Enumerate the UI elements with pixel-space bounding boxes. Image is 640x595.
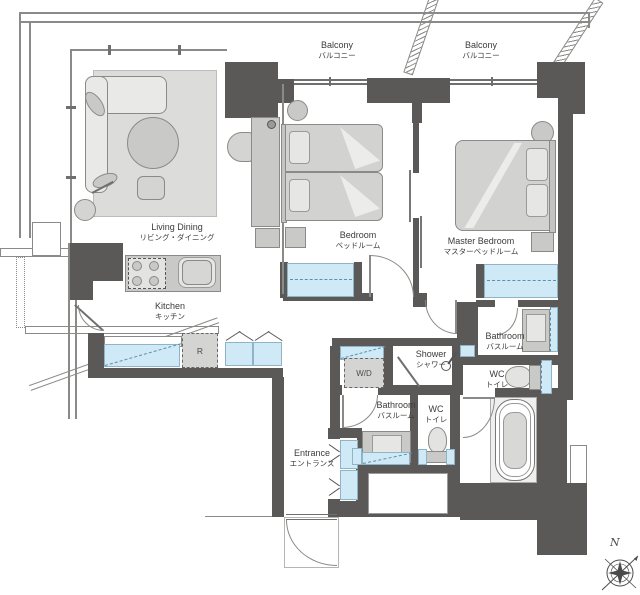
room-label-balcony-left: Balcony バルコニー [318, 40, 355, 61]
room-label-jp: バスルーム [485, 342, 524, 351]
stove-burner [149, 261, 159, 271]
wall [413, 123, 419, 173]
sliding-door [409, 170, 411, 222]
room-label-jp: シャワー [416, 360, 447, 369]
wall [384, 346, 393, 390]
wall [340, 501, 360, 517]
room-label-en: Shower [416, 349, 447, 360]
wall [104, 368, 283, 378]
window-wall [70, 49, 72, 248]
room-label-en: WC [425, 404, 448, 415]
bath-storage [460, 345, 475, 357]
cabinet-door-mark [268, 331, 283, 341]
entrance-landing [284, 517, 339, 568]
room-label-en: Entrance [290, 448, 335, 459]
floor-plan: R W/D [0, 0, 640, 595]
wc-storage [541, 360, 552, 394]
wall [537, 395, 567, 485]
room-label-en: Living Dining [140, 222, 215, 233]
stove-burner [132, 261, 142, 271]
bedroom-closet [287, 263, 354, 297]
window-mullion [329, 77, 331, 86]
window-wall [70, 49, 227, 51]
bedroom-window [293, 79, 369, 85]
room-label-jp: ベッドルーム [336, 241, 381, 250]
closet-dash [290, 279, 352, 280]
room-label-en: Balcony [318, 40, 355, 51]
entrance-alcove [368, 473, 448, 514]
window-mullion [108, 45, 111, 55]
wall [476, 300, 495, 307]
pillow [289, 131, 310, 164]
pillow [526, 184, 548, 217]
exterior-structure [32, 222, 61, 256]
vanity-sink [526, 314, 546, 342]
master-closet [484, 264, 558, 298]
shoe-cabinet [340, 470, 358, 500]
closet-dash [363, 453, 412, 464]
wall [558, 98, 585, 114]
coffee-table [127, 117, 179, 169]
toilet [505, 366, 531, 388]
nightstand [531, 232, 554, 252]
room-label-master-bedroom: Master Bedroom マスターベッドルーム [444, 236, 519, 257]
wc-storage [446, 449, 455, 465]
wall [88, 333, 104, 378]
balcony-rail [19, 21, 590, 23]
room-label-jp: トイレ [425, 415, 448, 424]
bath-storage [362, 452, 410, 465]
closet-dash [105, 343, 181, 366]
stove-burner [132, 276, 142, 286]
room-label-jp: リビング・ダイニング [140, 233, 215, 242]
floor-lamp [74, 199, 96, 221]
door-arc [370, 255, 414, 297]
bathtub-basin [503, 412, 527, 469]
balcony-rail [29, 21, 31, 238]
wall [330, 346, 340, 390]
bath-storage [352, 448, 362, 465]
room-label-wc-main: WC トイレ [425, 404, 448, 425]
chair [137, 176, 165, 200]
toilet [428, 427, 447, 453]
wall [518, 300, 558, 307]
balcony-divider [553, 0, 604, 68]
room-label-jp: エントランス [290, 459, 335, 468]
room-label-en: Kitchen [155, 301, 185, 312]
wall [330, 390, 340, 428]
wall [558, 114, 573, 400]
wc-storage [418, 449, 427, 465]
pillow [289, 179, 310, 212]
exterior-louver [16, 257, 25, 328]
hall-closet [104, 344, 180, 367]
refrigerator-label: R [197, 346, 203, 356]
closet-dash [487, 280, 556, 281]
balcony-rail [19, 12, 590, 14]
door-arc [342, 395, 378, 428]
cabinet-door-mark [239, 331, 254, 341]
room-label-wc-ensuite: WC トイレ [486, 369, 509, 390]
wall [225, 62, 278, 118]
toilet-tank [529, 365, 541, 390]
room-label-kitchen: Kitchen キッチン [155, 301, 185, 322]
room-label-en: WC [486, 369, 509, 380]
room-label-bathroom-main: Bathroom バスルーム [376, 400, 415, 421]
dining-chair [255, 228, 280, 248]
washer-dryer-label: W/D [356, 369, 372, 378]
cabinet-door-mark [329, 488, 340, 496]
window-mullion [66, 106, 76, 109]
room-label-bedroom: Bedroom ベッドルーム [336, 230, 381, 251]
wall [476, 264, 484, 298]
cabinet-door-mark [329, 478, 340, 486]
room-label-jp: バルコニー [318, 51, 355, 60]
hall-cabinet [253, 342, 282, 366]
window-mullion [66, 176, 76, 179]
wall [460, 483, 587, 520]
sliding-door [420, 216, 422, 268]
compass-north-label: N [610, 536, 620, 549]
wall [367, 78, 450, 103]
door-arc [425, 300, 457, 334]
bedside-table [287, 100, 308, 121]
window-mullion [178, 45, 181, 55]
wall [378, 385, 454, 395]
bed-headboard [549, 140, 556, 233]
room-label-jp: キッチン [155, 312, 185, 321]
room-label-jp: バルコニー [462, 51, 499, 60]
cabinet-door-mark [255, 331, 270, 341]
wall [70, 281, 93, 300]
wall [413, 218, 419, 300]
room-label-jp: マスターベッドルーム [444, 247, 519, 256]
washer-dryer: W/D [344, 358, 384, 388]
compass-rose-icon: N [598, 536, 640, 592]
room-label-balcony-right: Balcony バルコニー [462, 40, 499, 61]
wall [328, 428, 340, 439]
kitchen-sink-basin [182, 260, 212, 285]
wall [537, 62, 585, 98]
stove-burner [149, 276, 159, 286]
wall [537, 520, 587, 555]
room-label-living-dining: Living Dining リビング・ダイニング [140, 222, 215, 243]
dining-chair [227, 132, 253, 162]
room-label-en: Balcony [462, 40, 499, 51]
wall [332, 338, 458, 346]
room-label-jp: トイレ [486, 380, 509, 389]
master-window [450, 79, 538, 85]
room-label-en: Bathroom [376, 400, 415, 411]
room-label-shower: Shower シャワー [416, 349, 447, 370]
balcony-rail [19, 12, 21, 238]
door-knob [267, 120, 276, 129]
room-label-en: Master Bedroom [444, 236, 519, 247]
compass-rose-svg [598, 550, 640, 594]
room-label-en: Bedroom [336, 230, 381, 241]
room-label-bathroom-ensuite: Bathroom バスルーム [485, 331, 524, 352]
pillow [526, 148, 548, 181]
window-mullion [491, 77, 493, 86]
room-label-entrance: Entrance エントランス [290, 448, 335, 469]
bath-storage [550, 307, 558, 352]
refrigerator-space: R [182, 333, 218, 368]
dining-table [251, 117, 280, 227]
wall [70, 243, 123, 281]
wall [272, 377, 284, 517]
hall-cabinet [225, 342, 253, 366]
nightstand [285, 227, 306, 248]
wall [278, 79, 294, 103]
wall [412, 103, 422, 123]
room-label-jp: バスルーム [376, 411, 415, 420]
exterior-duct [570, 445, 587, 485]
cabinet-door-mark [226, 331, 241, 341]
room-label-en: Bathroom [485, 331, 524, 342]
